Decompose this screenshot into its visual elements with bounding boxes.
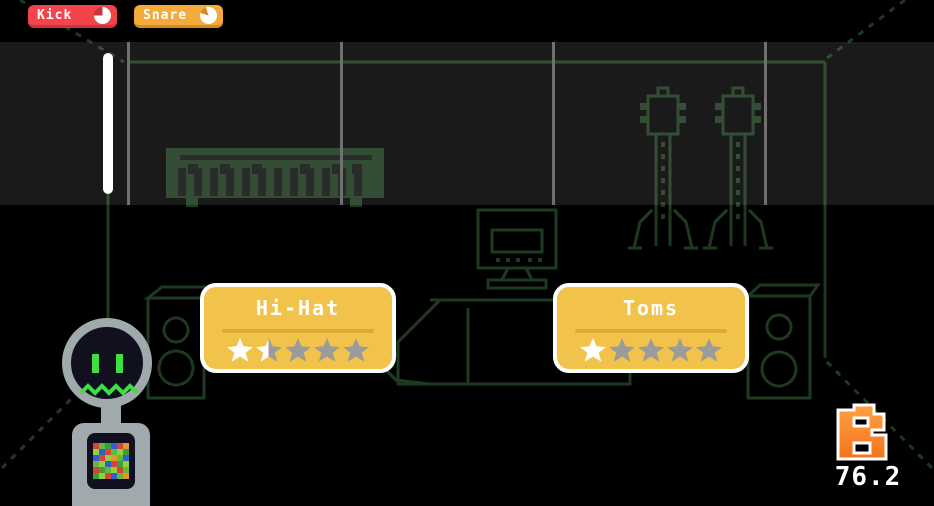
beat-grid-line (552, 42, 555, 205)
track-badge-kick[interactable]: Kick (28, 5, 117, 28)
card-title: Toms (557, 296, 745, 320)
beat-grid-line (340, 42, 343, 205)
star-icon (638, 338, 665, 363)
star-icon (256, 338, 283, 363)
pie-meter-icon (94, 7, 111, 24)
card-divider (222, 329, 374, 333)
star-rating (204, 338, 392, 363)
star-rating (557, 338, 745, 363)
pie-meter-icon (200, 7, 217, 24)
mosaic-cell (123, 473, 129, 479)
track-badge-label: Snare (143, 9, 187, 22)
beat-grid-line (127, 42, 130, 205)
star-icon (696, 338, 723, 363)
star-icon (314, 338, 341, 363)
track-badge-label: Kick (37, 9, 72, 22)
score-value: 76.2 (826, 462, 910, 492)
star-icon (667, 338, 694, 363)
timeline-band (0, 42, 934, 205)
pixel-mosaic-icon (93, 443, 129, 479)
b-logo-icon (834, 402, 900, 462)
robot-character (53, 310, 173, 506)
beat-grid-line (764, 42, 767, 205)
card-divider (575, 329, 727, 333)
playhead-marker (103, 53, 113, 194)
robot-screen (87, 433, 135, 489)
instrument-card-hihat[interactable]: Hi-Hat (200, 283, 396, 373)
instrument-card-toms[interactable]: Toms (553, 283, 749, 373)
star-icon (343, 338, 370, 363)
robot-neck (101, 405, 121, 425)
robot-mouth-icon (80, 382, 138, 398)
robot-head (62, 318, 152, 408)
star-icon (580, 338, 607, 363)
star-icon (609, 338, 636, 363)
card-title: Hi-Hat (204, 296, 392, 320)
speaker-right-art (748, 285, 818, 398)
track-badge-snare[interactable]: Snare (134, 5, 223, 28)
robot-eye-icon (92, 354, 99, 373)
robot-eye-icon (116, 354, 123, 373)
game-screen: Kick Snare Hi-Hat Toms (0, 0, 934, 506)
star-icon (227, 338, 254, 363)
star-icon (285, 338, 312, 363)
robot-body (72, 423, 150, 506)
